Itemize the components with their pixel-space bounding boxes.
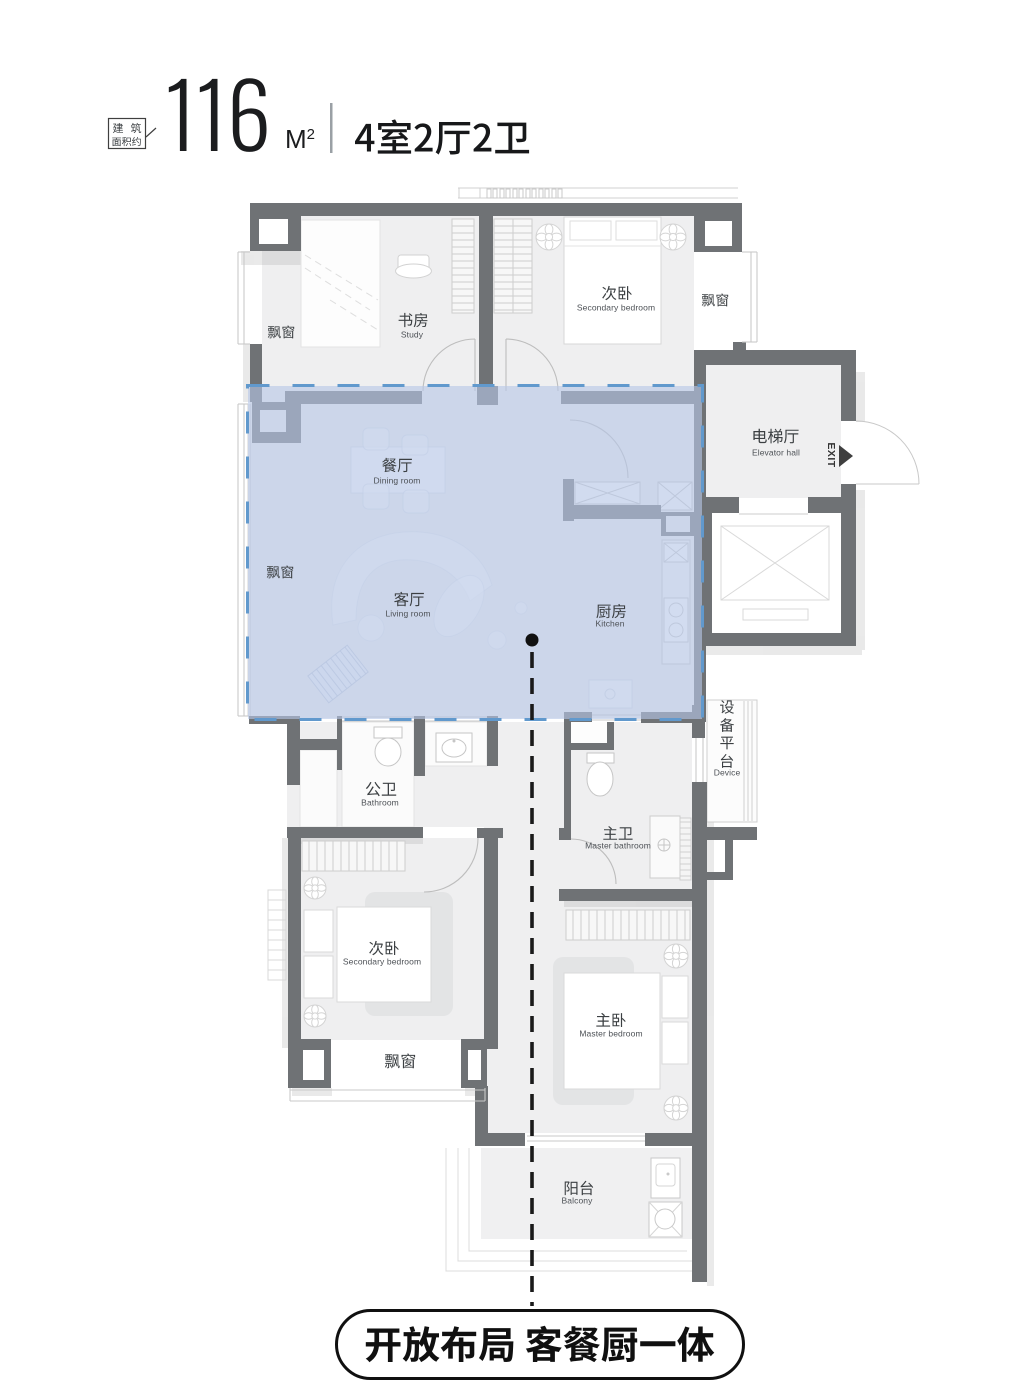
svg-text:Elevator hall: Elevator hall [752, 447, 800, 457]
svg-text:Secondary bedroom: Secondary bedroom [343, 956, 421, 966]
svg-text:Dining room: Dining room [374, 475, 421, 485]
svg-text:Bathroom: Bathroom [361, 797, 399, 807]
svg-text:Balcony: Balcony [562, 1195, 594, 1205]
svg-text:Living room: Living room [385, 608, 430, 618]
svg-text:Secondary bedroom: Secondary bedroom [577, 302, 655, 312]
svg-text:Master bedroom: Master bedroom [579, 1028, 642, 1038]
svg-text:Master bathroom: Master bathroom [585, 840, 651, 850]
svg-text:Device: Device [714, 767, 741, 777]
svg-text:Study: Study [401, 329, 424, 339]
svg-text:Kitchen: Kitchen [595, 618, 624, 628]
svg-text:EXIT: EXIT [825, 442, 837, 467]
